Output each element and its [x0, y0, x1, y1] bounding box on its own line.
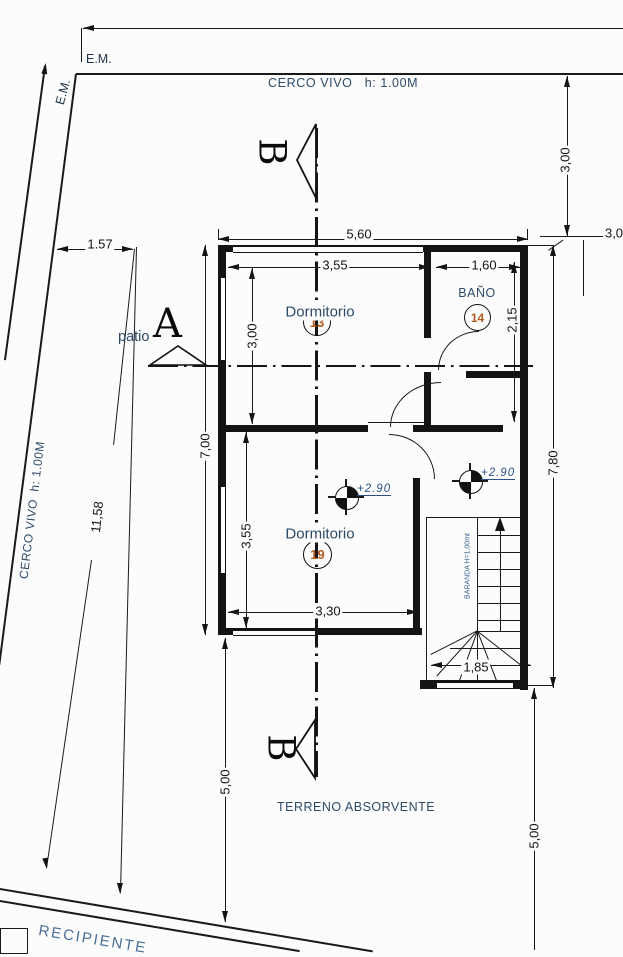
- window-dorm19-bottom: [233, 630, 317, 636]
- bottom-boundary-line-1: [0, 888, 373, 952]
- dim-30cut: 3,0: [603, 226, 623, 241]
- em-label-top: E.M.: [86, 52, 112, 66]
- dim-700: 7,00: [198, 431, 213, 460]
- room-label-bano: BAÑO: [458, 286, 495, 300]
- room-label-dorm19: Dormitorio: [283, 526, 356, 543]
- bottom-left-structure: [0, 928, 28, 954]
- section-marker-b-top-label: B: [251, 138, 294, 165]
- dim-157: 1.57: [85, 237, 114, 252]
- stair-winder-line: [476, 631, 477, 686]
- dim-185-arrow-right: [520, 662, 531, 668]
- dim-1158: 11,58: [88, 499, 107, 536]
- dim-780-arrow-bottom: [550, 677, 556, 688]
- dim-185: 1,85: [461, 660, 490, 675]
- dim-300r-arrow-bottom: [564, 225, 570, 236]
- dim-500r: 5,00: [527, 821, 542, 850]
- left-outer-dimension-arrow: [41, 63, 48, 75]
- section-marker-a-label: A: [153, 301, 182, 347]
- dim-157-arrow-right: [122, 246, 133, 252]
- recipiente-label: RECIPIENTE: [37, 922, 148, 957]
- section-line-b: [315, 128, 318, 777]
- stair-top-edge: [426, 517, 520, 518]
- stair-tread: [478, 586, 520, 587]
- dim-560-arrow-right: [517, 236, 528, 242]
- dim-215-arrow-bottom: [511, 411, 517, 422]
- window-left-1: [220, 278, 227, 360]
- dim-700-arrow-bottom: [202, 624, 208, 635]
- dim-330-arrow-right: [407, 609, 418, 615]
- dim-355b-arrow-bottom: [243, 617, 249, 628]
- cerco-vivo-top-label: CERCO VIVO h: 1.00M: [268, 76, 418, 90]
- stair-tread: [478, 620, 520, 621]
- stair-tread: [478, 603, 520, 604]
- stair-tread: [478, 631, 520, 632]
- stair-tread: [478, 552, 520, 553]
- dim-157-arrow-left: [57, 246, 68, 252]
- dim-355a-arrow-left: [228, 264, 239, 270]
- stair-tread: [478, 569, 520, 570]
- stair-direction-line: [500, 531, 501, 631]
- room-label-dorm13: Dormitorio: [283, 304, 356, 321]
- dim-185-arrow-left: [431, 662, 442, 668]
- left-outer-dimension-line: [4, 66, 46, 360]
- wall-right: [520, 245, 528, 690]
- level-marker-2: [459, 470, 483, 494]
- patio-label: patio: [118, 329, 149, 345]
- section-marker-b-top-triangle: [293, 122, 319, 202]
- wall-bano-bottom: [466, 371, 528, 378]
- window-stair-bottom: [437, 682, 513, 689]
- dim-500r-line: [534, 688, 535, 950]
- dim-700-arrow-top: [202, 245, 208, 256]
- dim-780-arrow-top: [550, 245, 556, 256]
- dim-215: 2,15: [505, 305, 520, 334]
- left-boundary-line: [0, 74, 77, 665]
- window-left-2: [220, 487, 227, 573]
- window-top: [233, 246, 423, 253]
- top-dimension-connector: [81, 28, 82, 62]
- dim-300r-arrow-top: [564, 76, 570, 87]
- baranda-label: BARANDA H=1.00mt: [465, 533, 472, 599]
- dim-300r: 3,00: [558, 145, 573, 174]
- dim-355a-arrow-right: [419, 264, 430, 270]
- top-dimension-line: [83, 28, 623, 29]
- cerco-vivo-left-label: CERCO VIVO h: 1.00M: [17, 440, 48, 579]
- floor-plan-page: { "labels": { "em_top": "E.M.", "em_side…: [0, 0, 623, 950]
- level-value-2: +2.90: [481, 467, 515, 480]
- level-marker-1: [335, 486, 359, 510]
- neighbor-line-2: [583, 240, 584, 296]
- dim-560: 5,60: [344, 227, 373, 242]
- stair-tread: [478, 535, 520, 536]
- dim-330-arrow-left: [228, 609, 239, 615]
- door-arc-dorm19: [389, 434, 435, 479]
- dim-355b: 3,55: [239, 521, 254, 550]
- top-dimension-arrow: [83, 25, 94, 31]
- stair-left-line: [426, 517, 427, 683]
- dim-215-arrow-top: [511, 262, 517, 273]
- wall-interior-h1: [218, 425, 368, 432]
- em-label-side: E.M.: [53, 78, 73, 106]
- dim-560-arrow-left: [218, 236, 229, 242]
- wall-dorm19-right: [413, 478, 420, 628]
- dim-300a-arrow-top: [249, 268, 255, 279]
- dim-500l-arrow-bottom: [222, 911, 228, 922]
- dim-160-arrow-left: [436, 264, 447, 270]
- dim-500r-arrow-top: [531, 688, 537, 699]
- dim-355a: 3,55: [320, 258, 349, 273]
- top-boundary-line: [76, 73, 623, 75]
- fence-line-arrow: [117, 883, 123, 894]
- room-circle-14: 14: [464, 304, 491, 331]
- level-value-1: +2.90: [357, 483, 391, 496]
- dim-300a-arrow-bottom: [249, 413, 255, 424]
- dim-330: 3,30: [313, 604, 342, 619]
- dim-215-line: [514, 262, 515, 422]
- dim-160: 1,60: [469, 258, 498, 273]
- dim-780: 7,80: [546, 448, 561, 477]
- wall-bano-left: [424, 245, 431, 338]
- dim-500l: 5,00: [218, 767, 233, 796]
- terreno-absorvente-label: TERRENO ABSORVENTE: [277, 800, 435, 814]
- room-circle-19: 19: [303, 540, 332, 569]
- room-number-19: 19: [310, 547, 324, 562]
- dim-500l-arrow-top: [222, 638, 228, 649]
- room-number-14: 14: [471, 311, 484, 325]
- dim-355b-arrow-top: [243, 432, 249, 443]
- plot-dimension-line-lower: [46, 560, 92, 868]
- stair-up-arrow: [495, 517, 505, 531]
- dim-300a: 3,00: [245, 321, 260, 350]
- section-marker-b-bottom-label: B: [260, 734, 303, 761]
- dim-30cut-line: [540, 236, 604, 237]
- plot-dimension-arrow: [42, 858, 49, 870]
- door-arc-dorm13: [390, 382, 441, 427]
